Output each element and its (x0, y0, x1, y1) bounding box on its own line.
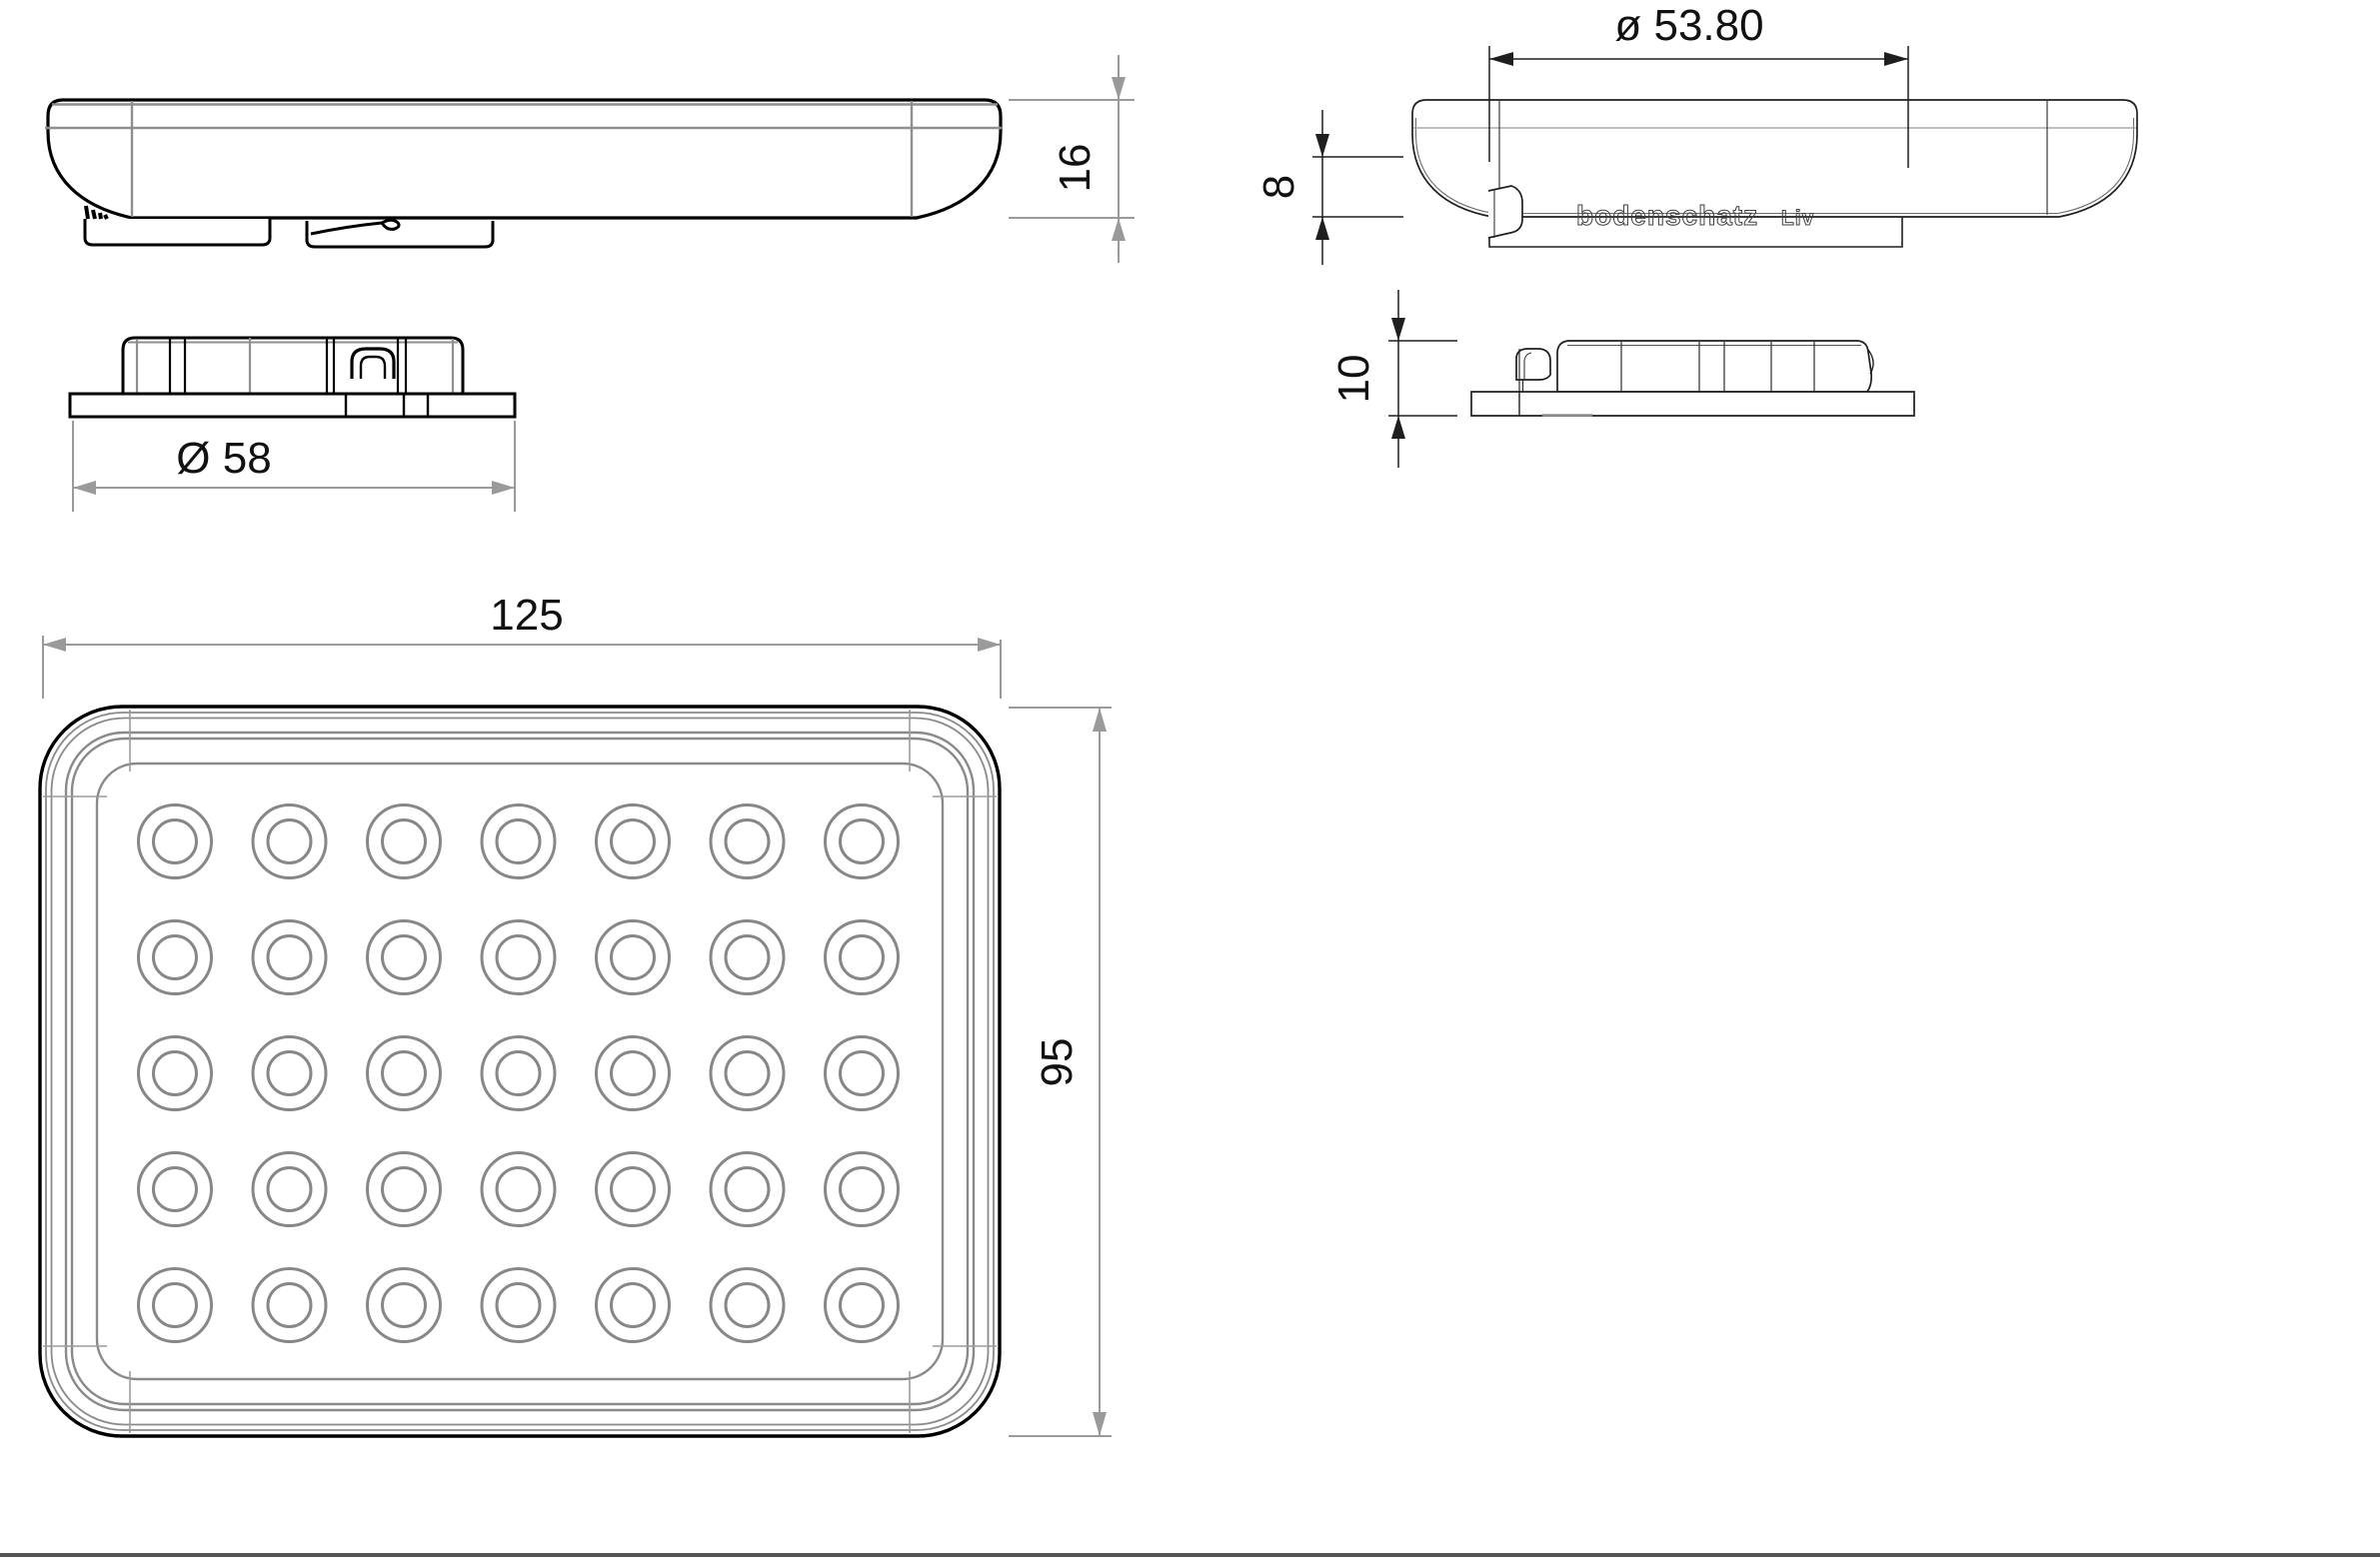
dim-value-95: 95 (1033, 1038, 1082, 1087)
dimension-plate-diameter: Ø 58 (73, 421, 515, 512)
dimension-recess-depth: 8 (1254, 110, 1403, 265)
view-plate-side-right (1471, 341, 1914, 416)
arrow-bottom (1315, 217, 1329, 240)
arrow-right (492, 481, 515, 495)
view-side-long (45, 100, 1002, 247)
technical-drawing: 16 Ø 58 (0, 0, 2380, 1566)
arrow-bottom (1391, 416, 1405, 439)
dim-value-16: 16 (1051, 144, 1100, 193)
foot-left (85, 219, 270, 245)
brand-series: Liv (1781, 207, 1814, 230)
plate-collar (123, 338, 463, 394)
drawing-sheet: 16 Ø 58 (0, 0, 2380, 1566)
arrow-left (43, 638, 66, 652)
dimension-body-height: 16 (1009, 55, 1135, 263)
arrow-left (1489, 52, 1513, 66)
dim-value-5380: ø 53.80 (1614, 1, 1763, 50)
clip-knob (1516, 349, 1550, 380)
plate-collar-right (1557, 341, 1871, 392)
arrow-top (1315, 134, 1329, 157)
dim-value-8: 8 (1254, 175, 1303, 199)
arrow-bottom (1112, 218, 1126, 241)
dim-value-58: Ø 58 (176, 434, 271, 483)
dimension-plate-height: 10 (1329, 290, 1457, 468)
arrow-top (1391, 318, 1405, 341)
view-plate-side (70, 338, 515, 417)
dimension-overall-depth: 95 (1009, 708, 1112, 1436)
clip-window-outer (352, 349, 394, 379)
wall-clip-tab (1488, 186, 1522, 238)
dimension-overall-width: 125 (43, 591, 1001, 699)
arrow-bottom (1093, 1412, 1107, 1436)
brand-name: bodenschatz (1576, 200, 1758, 231)
plate-base-right (1471, 392, 1914, 416)
dim-value-125: 125 (490, 591, 563, 640)
arrow-top (1112, 77, 1126, 100)
view-top (40, 707, 1000, 1436)
arrow-right (978, 638, 1001, 652)
dim-value-10: 10 (1329, 355, 1378, 404)
view-side-short: bodenschatz Liv (1412, 100, 2137, 247)
dish-body-outline (48, 100, 1001, 218)
arrow-right (1884, 52, 1908, 66)
arrow-top (1093, 708, 1107, 732)
plate-base (70, 394, 515, 417)
arrow-left (73, 481, 96, 495)
